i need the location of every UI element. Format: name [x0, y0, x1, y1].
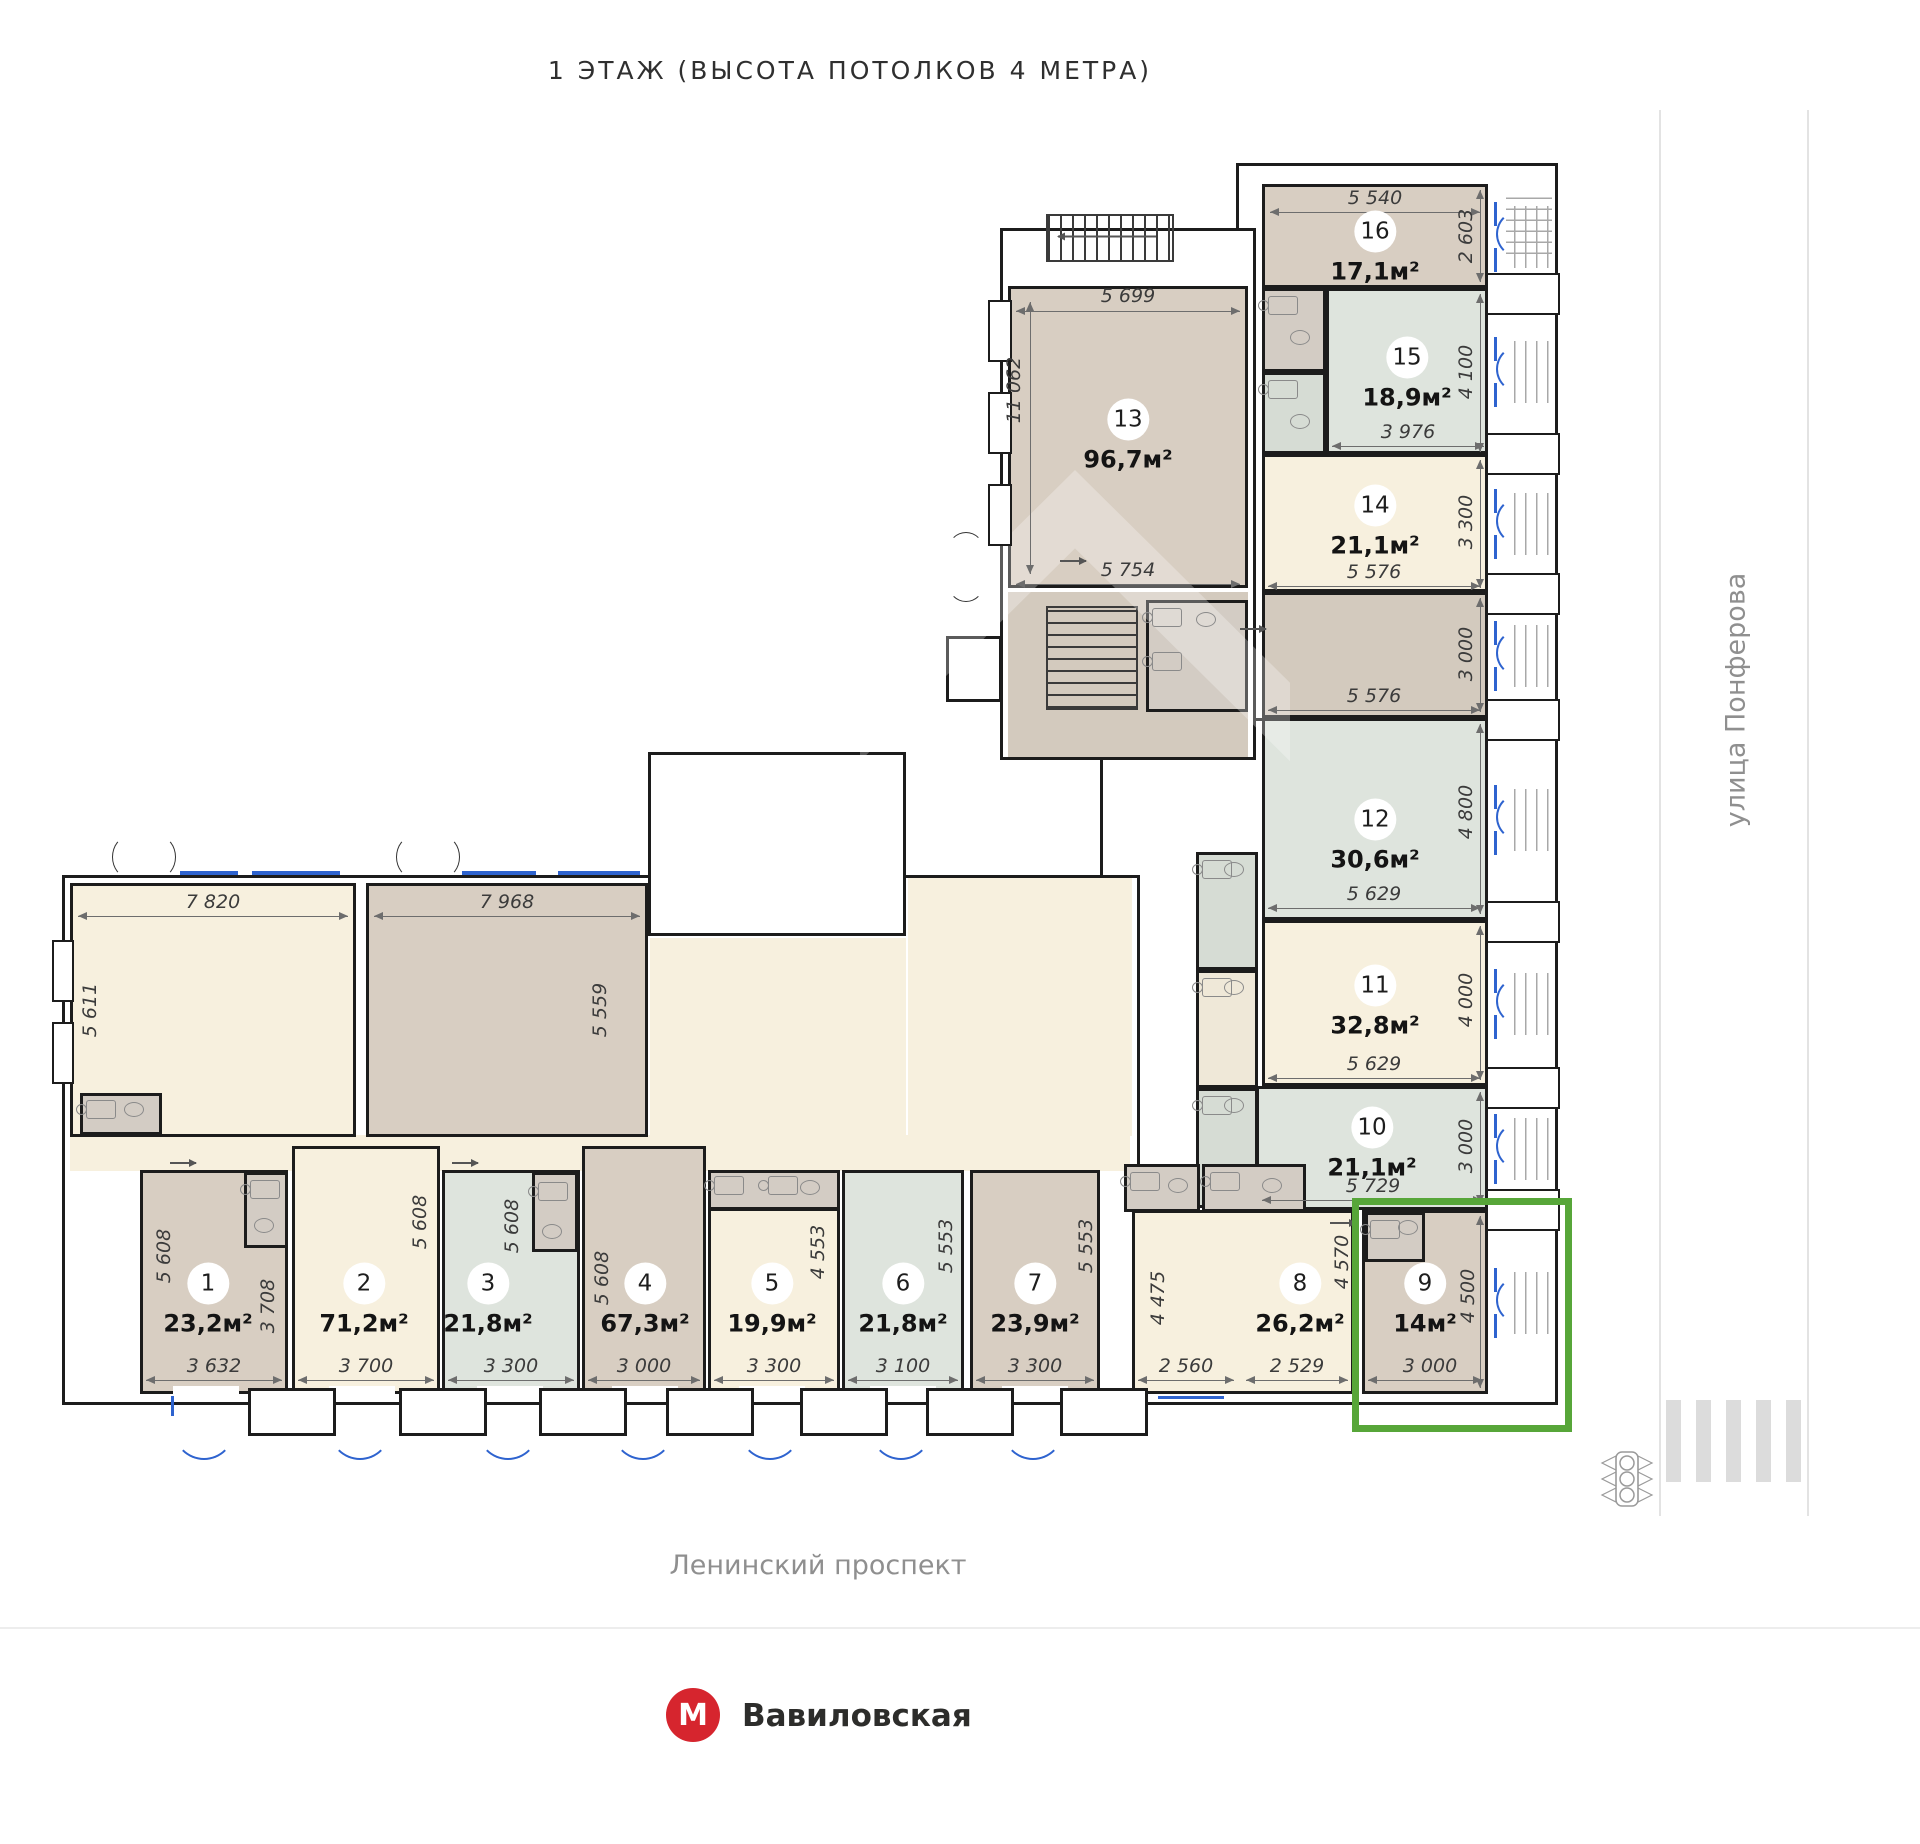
dim-label: 5 576	[1347, 685, 1401, 707]
dim-label: 5 608	[501, 1199, 523, 1253]
dim-line	[588, 1380, 700, 1381]
dim-line	[848, 1380, 958, 1381]
vestibule	[539, 1388, 627, 1436]
window-niche	[1486, 1067, 1560, 1109]
dim-line	[1480, 926, 1481, 1080]
sink-icon	[542, 1224, 562, 1239]
facade-door-icon	[1494, 1160, 1497, 1184]
window-strip-icon	[462, 871, 536, 875]
window-niche	[1486, 573, 1560, 615]
dim-label: 5 754	[1101, 559, 1155, 581]
dim-line	[1268, 1078, 1480, 1079]
window-niche	[988, 300, 1012, 362]
page-title: 1 ЭТАЖ (ВЫСОТА ПОТОЛКОВ 4 МЕТРА)	[540, 56, 1160, 85]
vestibule	[666, 1388, 754, 1436]
dim-label: 5 699	[1101, 285, 1155, 307]
dim-label: 5 576	[1347, 561, 1401, 583]
courtyard	[648, 752, 906, 936]
dim-label: 4 100	[1455, 345, 1477, 399]
dim-label: 2 603	[1455, 209, 1477, 263]
toilet-icon	[1152, 652, 1182, 671]
room-area: 21,8м²	[858, 1310, 947, 1338]
street-label-right: улица Понферова	[1721, 573, 1752, 828]
dim-label: 4 800	[1455, 785, 1477, 839]
toilet-icon	[768, 1176, 798, 1195]
facade-door-icon	[1494, 621, 1497, 645]
crosswalk-stripe	[1756, 1400, 1771, 1482]
door-swing-icon	[112, 836, 146, 878]
room-6-label: 621,8м²	[858, 1263, 947, 1338]
room-area: 18,9м²	[1362, 384, 1451, 412]
highlighted-unit-frame[interactable]	[1352, 1198, 1572, 1432]
room-number: 10	[1351, 1107, 1393, 1149]
room-area: 30,6м²	[1330, 846, 1419, 874]
facade-door-icon	[1494, 1015, 1497, 1039]
dim-label: 3 300	[747, 1355, 801, 1377]
crosswalk-stripe	[1666, 1400, 1681, 1482]
divider-line	[0, 1627, 1920, 1629]
room-12-label: 1230,6м²	[1330, 799, 1419, 874]
window-strip-icon	[180, 871, 238, 875]
sink-icon	[1196, 612, 1216, 627]
room-number: 15	[1386, 337, 1428, 379]
dim-label: 11 062	[1003, 357, 1025, 423]
dim-line	[1332, 446, 1484, 447]
stair-direction-arrow	[1058, 236, 1156, 238]
dim-label: 5 611	[79, 983, 101, 1037]
metro-station-name: Вавиловская	[742, 1698, 972, 1734]
room-number: 12	[1354, 799, 1396, 841]
toilet-icon	[1152, 608, 1182, 627]
facade-door-arc-icon	[1496, 793, 1544, 841]
room-area: 23,9м²	[990, 1310, 1079, 1338]
dim-line	[1480, 598, 1481, 712]
crosswalk-stripe	[1696, 1400, 1711, 1482]
vestibule	[800, 1388, 888, 1436]
corridor	[908, 878, 1132, 1136]
crosswalk-stripe	[1726, 1400, 1741, 1482]
dim-label: 3 632	[187, 1355, 241, 1377]
door-arrow-icon	[170, 1162, 196, 1164]
room-16-label: 1617,1м²	[1330, 211, 1419, 286]
room-area: 32,8м²	[1330, 1012, 1419, 1040]
dim-label: 2 529	[1270, 1355, 1324, 1377]
door-arrow-icon	[452, 1162, 478, 1164]
room-area: 23,2м²	[163, 1310, 252, 1338]
crosswalk-stripe	[1786, 1400, 1801, 1482]
sink-icon	[800, 1180, 820, 1195]
room-number: 14	[1354, 485, 1396, 527]
facade-door-icon	[1494, 831, 1497, 855]
window-strip-icon	[252, 871, 340, 875]
metro-icon: М	[666, 1688, 720, 1742]
room-area: 21,1м²	[1327, 1154, 1416, 1182]
room-2-label: 271,2м²	[319, 1263, 408, 1338]
room-number: 16	[1354, 211, 1396, 253]
dim-line	[1016, 584, 1240, 585]
room-number: 7	[1014, 1263, 1056, 1305]
window-niche	[1486, 273, 1560, 315]
dim-line	[1016, 311, 1240, 312]
toilet-icon	[1268, 380, 1298, 399]
room-number: 13	[1107, 399, 1149, 441]
room-15-label: 1518,9м²	[1362, 337, 1451, 412]
staircase-icon	[1046, 214, 1174, 262]
room-area: 19,9м²	[727, 1310, 816, 1338]
stairwell-icon	[1046, 606, 1138, 710]
sink-icon	[1224, 980, 1244, 995]
dim-line	[1480, 190, 1481, 282]
toilet-icon	[714, 1176, 744, 1195]
sink-icon	[1290, 330, 1310, 345]
facade-door-icon	[1494, 489, 1497, 513]
door-swing-icon	[948, 566, 984, 602]
door-swing-icon	[948, 532, 984, 568]
dim-label: 5 608	[409, 1195, 431, 1249]
entrance-door-arc-icon	[173, 1398, 235, 1460]
dim-line	[1246, 1380, 1348, 1381]
dim-label: 4 000	[1455, 973, 1477, 1027]
sink-icon	[1168, 1178, 1188, 1193]
dim-line	[448, 1380, 574, 1381]
dim-label: 3 708	[257, 1279, 279, 1333]
door-opening	[173, 1386, 239, 1398]
dim-label: 5 629	[1347, 1053, 1401, 1075]
dim-line	[1268, 586, 1480, 587]
street-edge-line	[1807, 110, 1809, 1516]
facade-door-arc-icon	[1496, 977, 1544, 1025]
sink-icon	[254, 1218, 274, 1233]
toilet-icon	[86, 1100, 116, 1119]
dim-line	[1268, 908, 1480, 909]
room-4-label: 467,3м²	[600, 1263, 689, 1338]
window-niche	[52, 940, 74, 1002]
facade-door-icon	[1494, 248, 1497, 272]
facade-door-icon	[1494, 383, 1497, 407]
entrance-door-icon	[171, 1396, 174, 1416]
dim-label: 3 300	[1455, 495, 1477, 549]
room-3-label: 321,8м²	[443, 1263, 532, 1338]
window-niche	[1486, 901, 1560, 943]
dim-label: 3 000	[1455, 627, 1477, 681]
room-number: 6	[882, 1263, 924, 1305]
facade-door-icon	[1494, 785, 1497, 809]
room-number: 2	[343, 1263, 385, 1305]
dim-line	[1480, 460, 1481, 588]
dim-label: 7 820	[186, 891, 240, 913]
room-14-label: 1421,1м²	[1330, 485, 1419, 560]
facade-door-icon	[1494, 535, 1497, 559]
sink-icon	[124, 1102, 144, 1117]
room-8-label: 826,2м²	[1255, 1263, 1344, 1338]
door-opening	[329, 1386, 395, 1398]
facade-door-arc-icon	[1496, 1122, 1544, 1170]
dim-line	[1480, 724, 1481, 914]
window-niche	[52, 1022, 74, 1084]
dim-label: 5 559	[589, 983, 611, 1037]
sink-icon	[1224, 1098, 1244, 1113]
dim-line	[1138, 1380, 1234, 1381]
door-swing-icon	[396, 836, 430, 878]
window-strip-icon	[558, 871, 640, 875]
room-1-label: 123,2м²	[163, 1263, 252, 1338]
toilet-icon	[538, 1182, 568, 1201]
window-niche	[1486, 699, 1560, 741]
facade-door-icon	[1494, 667, 1497, 691]
entrance-door-arc-icon	[329, 1398, 391, 1460]
room-area: 21,8м²	[443, 1310, 532, 1338]
room-13-label: 1396,7м²	[1083, 399, 1172, 474]
door-arrow-icon	[1060, 560, 1086, 562]
room-number: 8	[1279, 1263, 1321, 1305]
dim-label: 5 540	[1348, 187, 1402, 209]
room-number: 11	[1354, 965, 1396, 1007]
facade-door-icon	[1494, 1114, 1497, 1138]
room-number: 5	[751, 1263, 793, 1305]
toilet-icon	[250, 1180, 280, 1199]
room-area: 71,2м²	[319, 1310, 408, 1338]
facade-door-icon	[1494, 202, 1497, 226]
room-7-label: 723,9м²	[990, 1263, 1079, 1338]
door-swing-icon	[426, 836, 460, 878]
room-number: 3	[467, 1263, 509, 1305]
dim-line	[298, 1380, 434, 1381]
entrance-door-icon	[1158, 1396, 1224, 1399]
facade-door-arc-icon	[1496, 345, 1544, 393]
door-arrow-icon	[1240, 628, 1266, 630]
room-5-label: 519,9м²	[727, 1263, 816, 1338]
toilet-icon	[1130, 1172, 1160, 1191]
window-niche	[988, 484, 1012, 546]
dim-label: 3 100	[876, 1355, 930, 1377]
room-area: 21,1м²	[1330, 532, 1419, 560]
vestibule	[1060, 1388, 1148, 1436]
room-11-label: 1132,8м²	[1330, 965, 1419, 1040]
dim-line	[146, 1380, 282, 1381]
room-area: 67,3м²	[600, 1310, 689, 1338]
dim-label: 3 700	[339, 1355, 393, 1377]
room-area: 26,2м²	[1255, 1310, 1344, 1338]
facade-door-arc-icon	[1496, 210, 1544, 258]
dim-label: 7 968	[480, 891, 534, 913]
dim-line	[1480, 1092, 1481, 1204]
dim-line	[374, 916, 640, 917]
dim-line	[78, 916, 348, 917]
dim-label: 3 000	[1455, 1119, 1477, 1173]
dim-label: 5 629	[1347, 883, 1401, 905]
toilet-icon	[1268, 296, 1298, 315]
dim-line	[714, 1380, 834, 1381]
facade-door-icon	[1494, 969, 1497, 993]
dim-label: 3 300	[1008, 1355, 1062, 1377]
vestibule	[926, 1388, 1014, 1436]
room-number: 4	[624, 1263, 666, 1305]
corridor	[650, 938, 906, 1136]
dim-line	[1268, 710, 1480, 711]
facade-door-arc-icon	[1496, 497, 1544, 545]
metro-letter: М	[678, 1698, 708, 1733]
dim-line	[1480, 294, 1481, 452]
street-edge-line	[1659, 110, 1661, 1516]
dim-label: 3 300	[484, 1355, 538, 1377]
door-swing-icon	[142, 836, 176, 878]
room-area: 96,7м²	[1083, 446, 1172, 474]
toilet-icon	[1210, 1172, 1240, 1191]
dim-label: 4 475	[1147, 1271, 1169, 1325]
room-area: 17,1м²	[1330, 258, 1419, 286]
facade-door-icon	[1494, 337, 1497, 361]
sink-icon	[1290, 414, 1310, 429]
dim-line	[976, 1380, 1094, 1381]
sink-icon	[1262, 1178, 1282, 1193]
window-niche	[1486, 433, 1560, 475]
room-10-label: 1021,1м²	[1327, 1107, 1416, 1182]
dim-label: 3 976	[1381, 421, 1435, 443]
facade-door-arc-icon	[1496, 629, 1544, 677]
street-label-bottom: Ленинский проспект	[618, 1550, 1018, 1581]
vestibule	[248, 1388, 336, 1436]
room-number: 1	[187, 1263, 229, 1305]
traffic-light-icon	[1594, 1448, 1656, 1510]
dim-line	[1030, 302, 1031, 574]
dim-label: 2 560	[1159, 1355, 1213, 1377]
floor-plan-page: 1 ЭТАЖ (ВЫСОТА ПОТОЛКОВ 4 МЕТРА) улица П…	[0, 0, 1920, 1844]
dim-label: 3 000	[617, 1355, 671, 1377]
sink-icon	[1224, 862, 1244, 877]
vestibule	[399, 1388, 487, 1436]
